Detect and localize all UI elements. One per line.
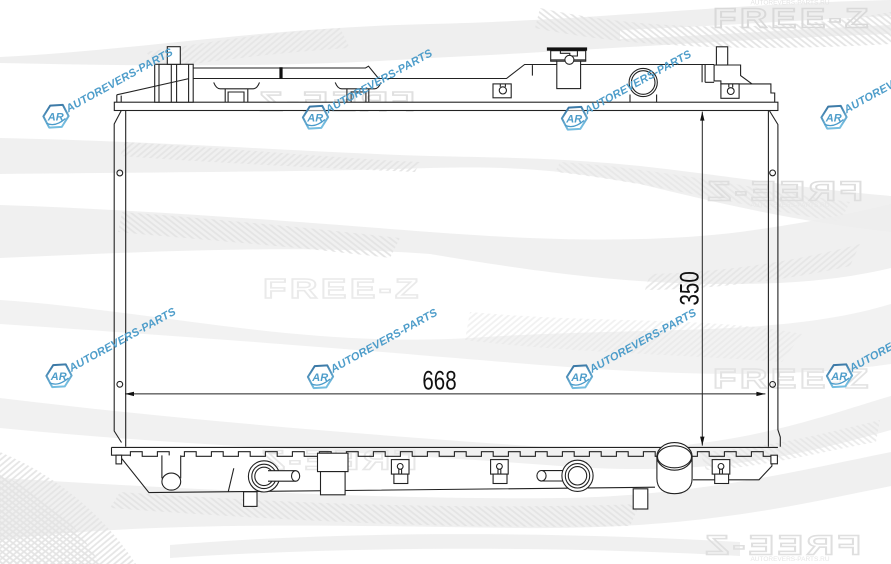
svg-text:668: 668 xyxy=(422,366,456,396)
svg-text:350: 350 xyxy=(675,271,705,305)
